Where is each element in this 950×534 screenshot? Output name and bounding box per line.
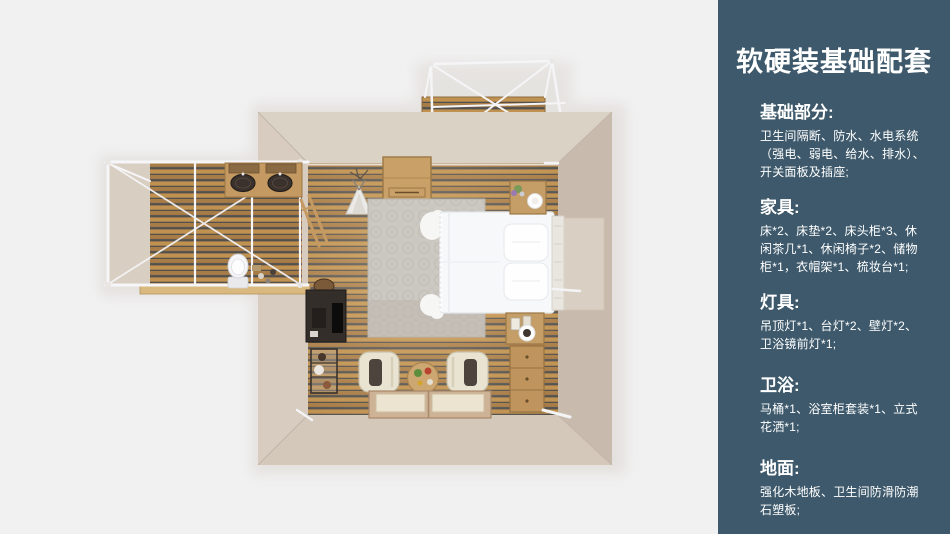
sidebar-title: 软硬装基础配套 [724, 46, 944, 78]
section-furniture: 家具: 床*2、床垫*2、床头柜*3、休 闲茶几*1、休闲椅子*2、储物 柜*1… [760, 197, 942, 276]
floorplan-render [0, 0, 718, 534]
section-basics: 基础部分: 卫生间隔断、防水、水电系统 （强电、弱电、给水、排水）、 开关面板及… [760, 102, 942, 181]
toilet [228, 254, 248, 288]
slide: 软硬装基础配套 基础部分: 卫生间隔断、防水、水电系统 （强电、弱电、给水、排水… [0, 0, 950, 534]
section-line: （强电、弱电、给水、排水）、 [760, 145, 942, 163]
section-bathroom: 卫浴: 马桶*1、浴室柜套装*1、立式 花洒*1; [760, 375, 942, 436]
spec-sections: 基础部分: 卫生间隔断、防水、水电系统 （强电、弱电、给水、排水）、 开关面板及… [718, 78, 950, 519]
mirror [266, 164, 296, 173]
double-bed [440, 212, 564, 313]
section-heading: 基础部分: [760, 102, 942, 124]
armchair-left [359, 352, 399, 392]
headboard [552, 216, 564, 310]
section-line: 吊顶灯*1、台灯*2、壁灯*2、 [760, 317, 942, 335]
section-line: 卫生间隔断、防水、水电系统 [760, 127, 942, 145]
section-line: 卫浴镜前灯*1; [760, 335, 942, 353]
bathroom-annex [105, 159, 327, 294]
monitor [332, 303, 343, 333]
section-heading: 灯具: [760, 292, 942, 314]
sink-basin [268, 175, 292, 192]
section-line: 花洒*1; [760, 418, 942, 436]
section-line: 强化木地板、卫生间防滑防潮 [760, 483, 942, 501]
section-heading: 家具: [760, 197, 942, 219]
annex-wall-face [108, 163, 150, 285]
sink-vanity [225, 163, 302, 197]
section-line: 闲茶几*1、休闲椅子*2、储物 [760, 240, 942, 258]
section-flooring: 地面: 强化木地板、卫生间防滑防潮 石塑板; [760, 458, 942, 519]
sink-basin [231, 175, 255, 192]
tatami-beds [369, 391, 491, 418]
nightstand-top [510, 181, 546, 214]
section-heading: 地面: [760, 458, 942, 480]
armchair-right [447, 352, 488, 392]
section-line: 床*2、床垫*2、床头柜*3、休 [760, 222, 942, 240]
coat-rack [311, 349, 337, 393]
section-lighting: 灯具: 吊顶灯*1、台灯*2、壁灯*2、 卫浴镜前灯*1; [760, 292, 942, 353]
coffee-table [408, 363, 439, 394]
storage-dresser [510, 346, 544, 412]
section-line: 马桶*1、浴室柜套装*1、立式 [760, 400, 942, 418]
section-heading: 卫浴: [760, 375, 942, 397]
section-line: 开关面板及插座; [760, 163, 942, 181]
flowers [425, 368, 432, 375]
spec-sidebar: 软硬装基础配套 基础部分: 卫生间隔断、防水、水电系统 （强电、弱电、给水、排水… [718, 0, 950, 534]
mirror [229, 164, 259, 173]
section-line: 石塑板; [760, 501, 942, 519]
annex-threshold [140, 286, 310, 294]
right-wall-door [560, 218, 604, 310]
section-line: 柜*1，衣帽架*1、梳妆台*1; [760, 258, 942, 276]
wardrobe-cabinet [383, 157, 431, 201]
nightstand-bottom [506, 313, 544, 344]
